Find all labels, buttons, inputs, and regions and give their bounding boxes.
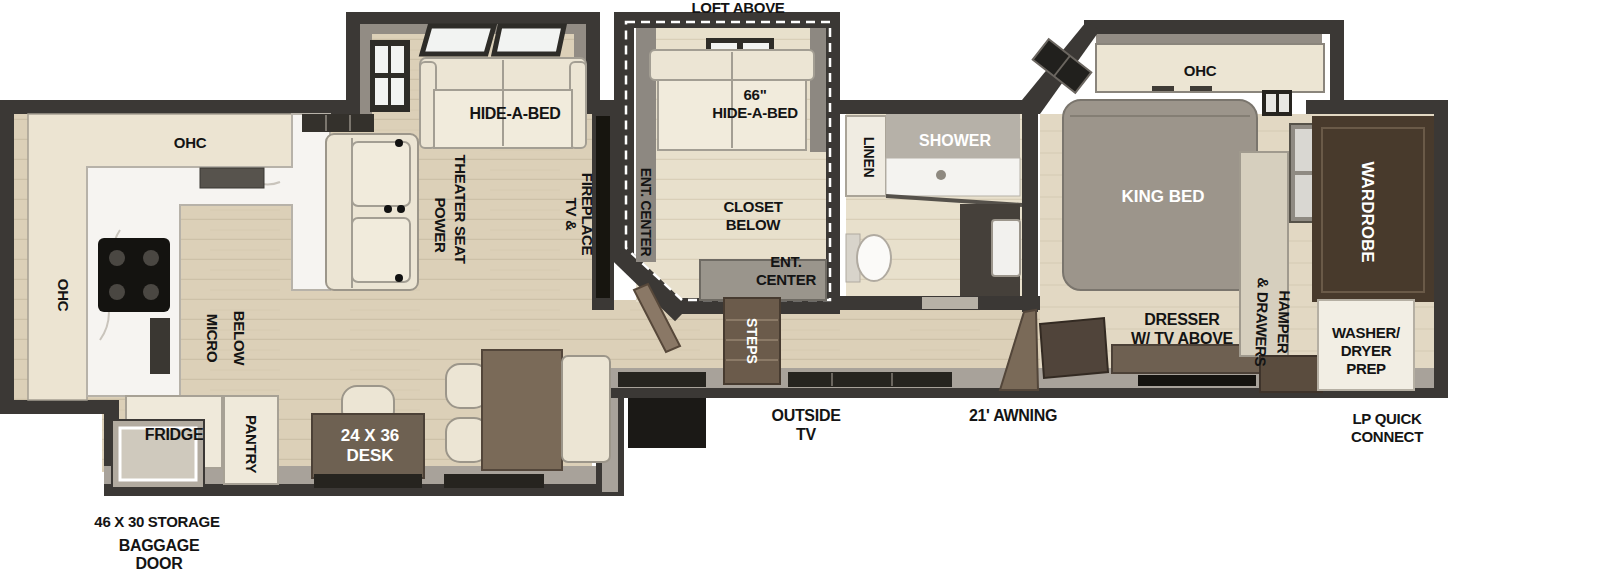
label-micro: MICRO [204, 314, 221, 363]
cupholder [395, 274, 403, 282]
midroom-left-wall [614, 12, 634, 262]
bedroom-chest [1040, 318, 1108, 378]
burner [109, 284, 125, 300]
label-storage: 46 X 30 STORAGE [94, 513, 220, 530]
label-ent-bottom: ENT. [770, 253, 801, 270]
right-wall [1434, 100, 1448, 398]
label-closet-below-2: BELOW [726, 216, 781, 233]
label-washer: WASHER/ [1332, 324, 1401, 341]
cupholder [384, 205, 392, 213]
label-king-bed: KING BED [1121, 187, 1204, 206]
label-pantry: PANTRY [243, 415, 260, 473]
bottom-window [314, 474, 422, 488]
bed-slide-lining [1096, 34, 1322, 44]
cupholder [395, 139, 403, 147]
label-ent-bottom-2: CENTER [756, 271, 816, 288]
living-slide-top [346, 12, 600, 24]
vanity-sink [992, 220, 1020, 276]
label-hide-a-bed: HIDE-A-BED [469, 105, 560, 122]
label-fireplace: FIREPLACE [579, 173, 596, 256]
label-desk: 24 X 36 [341, 426, 400, 445]
label-dresser: DRESSER [1144, 311, 1220, 328]
label-power: POWER [432, 197, 449, 253]
label-linen: LINEN [861, 137, 877, 178]
window-pane [391, 78, 404, 105]
label-bedroom-ohc: OHC [1184, 62, 1217, 79]
label-outside-tv-2: TV [796, 426, 816, 443]
label-66: 66" [744, 86, 767, 103]
living-slide-right [586, 12, 600, 114]
window-pane [391, 46, 404, 73]
skylight-window [494, 26, 564, 54]
dinette-bench [562, 356, 610, 462]
outside-tv [628, 398, 706, 448]
label-hamper-2: & DRAWERS [1252, 277, 1272, 367]
fireplace-tv-panel [596, 116, 610, 298]
label-hamper: HAMPER [1274, 290, 1293, 354]
bedroom-left-wall [1022, 100, 1038, 312]
theater-seat-cushion [352, 142, 410, 206]
label-baggage-door-2: DOOR [136, 555, 184, 572]
cooktop [98, 238, 170, 312]
window-pane [1295, 175, 1312, 217]
bath-door-opening [922, 297, 978, 309]
dinette-table [482, 350, 562, 470]
left-wall [0, 100, 14, 414]
label-theater-seat: THEATER SEAT [452, 154, 469, 263]
dresser-tv [1138, 375, 1256, 386]
burner [143, 250, 159, 266]
label-closet-below: CLOSET [723, 198, 782, 215]
bed-slide-top [1084, 20, 1344, 34]
label-wardrobe: WARDROBE [1358, 161, 1377, 262]
bottom-window [444, 474, 544, 488]
kitchen-top-wall [0, 100, 346, 114]
burner [109, 250, 125, 266]
burner [143, 284, 159, 300]
label-awning: 21' AWNING [969, 407, 1057, 424]
window-pane [1295, 129, 1312, 171]
label-shower: SHOWER [919, 132, 991, 149]
kitchen-sink [200, 168, 264, 188]
bath-left-wall [826, 14, 840, 312]
living-slide-left [346, 12, 360, 114]
shower-drain [936, 170, 946, 180]
label-micro-2: BELOW [231, 311, 248, 366]
label-fridge: FRIDGE [145, 426, 204, 443]
label-tv: TV & [563, 198, 580, 231]
label-desk-2: DESK [346, 446, 394, 465]
bedroom-top-wall [1306, 100, 1448, 114]
ohc-handle [1152, 86, 1174, 91]
ohc-handle [1190, 86, 1212, 91]
label-ent-center-side: ENT. CENTER [638, 168, 654, 257]
label-dresser-2: W/ TV ABOVE [1131, 330, 1234, 347]
window-pane [1266, 94, 1276, 112]
window-pane [375, 78, 388, 105]
label-ohc-top: OHC [174, 134, 207, 151]
label-66-hide-a-bed: HIDE-A-BED [712, 104, 798, 121]
label-washer-2: DRYER [1341, 342, 1392, 359]
label-outside-tv: OUTSIDE [771, 407, 841, 424]
theater-seat-cushion [352, 218, 410, 282]
label-washer-3: PREP [1346, 360, 1386, 377]
outside-notch [0, 414, 102, 572]
label-loft-above: LOFT ABOVE [691, 0, 784, 16]
notch-wall-h [0, 400, 118, 414]
floorplan-image: LOFT ABOVE OHC OHC MICRO BELOW FRIDGE PA… [0, 0, 1600, 572]
label-lp-2: CONNECT [1351, 428, 1423, 445]
cupholder [397, 205, 405, 213]
bottom-window [788, 372, 952, 387]
shower-pan [886, 158, 1020, 196]
midroom-right-lining [810, 28, 826, 152]
bottom-window [618, 372, 706, 387]
bath-top-wall [826, 100, 1040, 114]
label-lp: LP QUICK [1353, 410, 1422, 427]
label-baggage-door: BAGGAGE [119, 537, 200, 554]
window-pane [1279, 94, 1289, 112]
floorplan-svg: LOFT ABOVE OHC OHC MICRO BELOW FRIDGE PA… [0, 0, 1600, 572]
skylight-window [422, 26, 494, 54]
oven-below [150, 318, 170, 374]
toilet [857, 235, 891, 281]
kitchen-window [302, 114, 374, 132]
label-steps: STEPS [744, 318, 760, 364]
window-pane [375, 46, 388, 73]
label-ohc-left: OHC [55, 279, 72, 312]
bed-slide-right [1330, 20, 1344, 114]
